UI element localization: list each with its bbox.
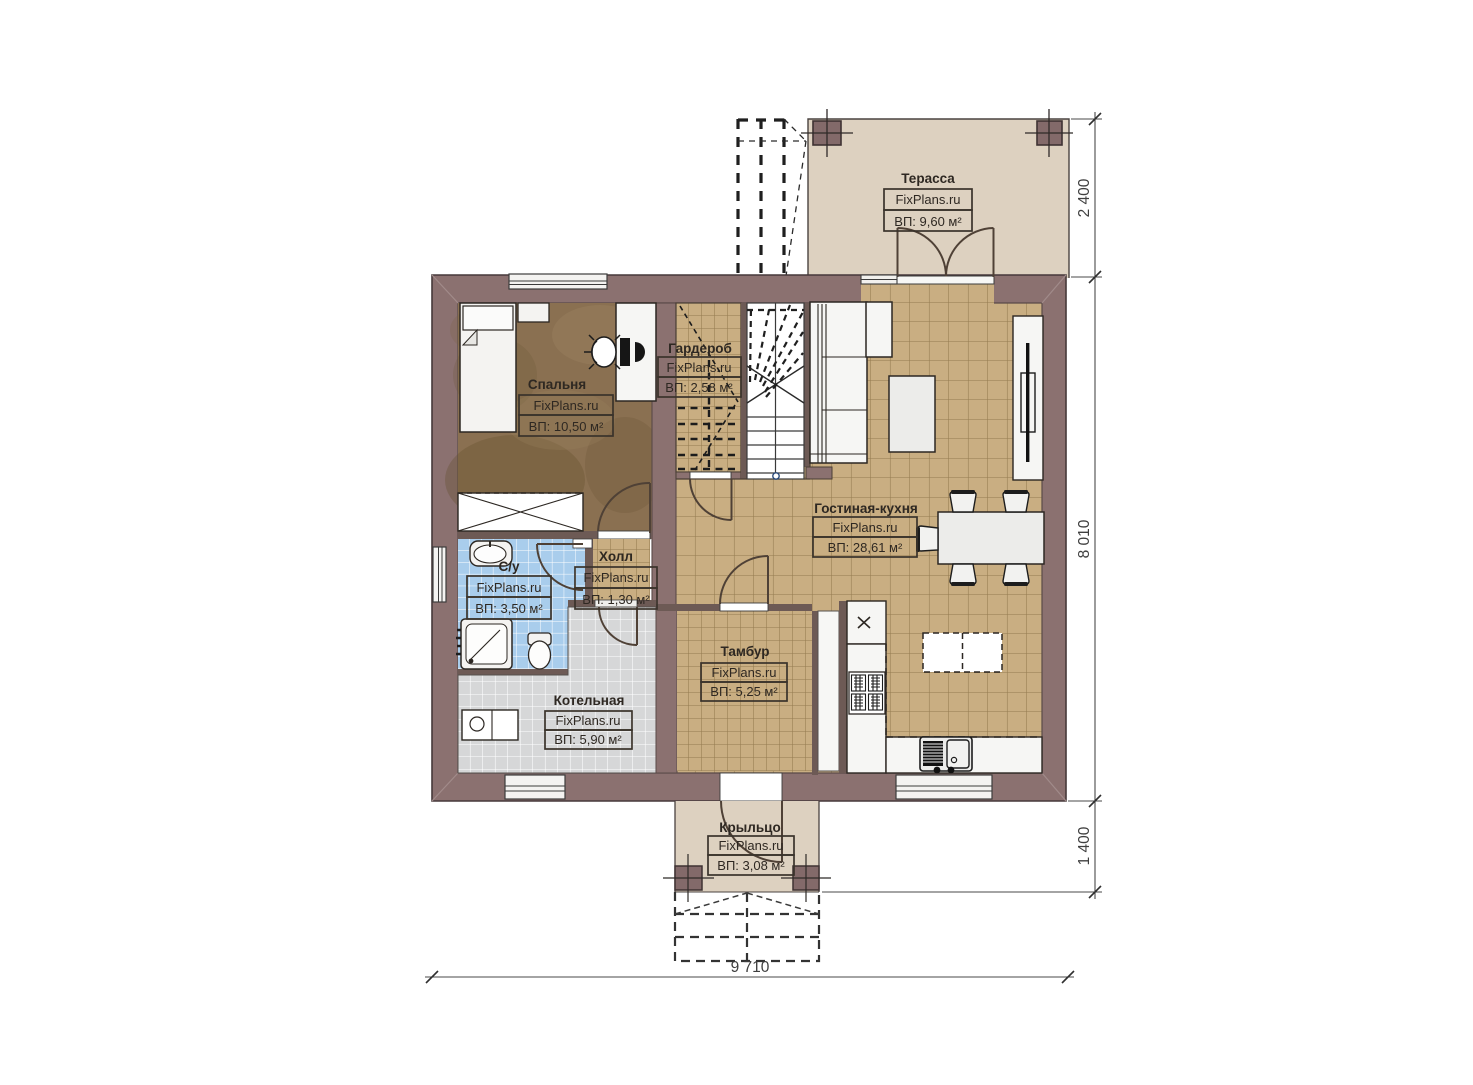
svg-text:2 400: 2 400 bbox=[1076, 178, 1093, 217]
svg-text:ВП: 28,61 м²: ВП: 28,61 м² bbox=[828, 540, 903, 555]
svg-text:ВП: 3,08 м²: ВП: 3,08 м² bbox=[717, 858, 785, 873]
svg-text:1 400: 1 400 bbox=[1076, 826, 1093, 865]
svg-text:FixPlans.ru: FixPlans.ru bbox=[476, 580, 541, 595]
svg-text:ВП: 5,25 м²: ВП: 5,25 м² bbox=[710, 684, 778, 699]
svg-text:8 010: 8 010 bbox=[1076, 519, 1093, 558]
svg-text:ВП: 9,60 м²: ВП: 9,60 м² bbox=[894, 214, 962, 229]
svg-text:FixPlans.ru: FixPlans.ru bbox=[555, 713, 620, 728]
svg-text:ВП: 1,30 м²: ВП: 1,30 м² bbox=[582, 592, 650, 607]
svg-text:С/у: С/у bbox=[498, 559, 520, 574]
svg-text:Котельная: Котельная bbox=[554, 693, 625, 708]
svg-text:FixPlans.ru: FixPlans.ru bbox=[533, 398, 598, 413]
svg-text:9 710: 9 710 bbox=[731, 959, 770, 976]
svg-text:FixPlans.ru: FixPlans.ru bbox=[711, 665, 776, 680]
svg-text:FixPlans.ru: FixPlans.ru bbox=[718, 838, 783, 853]
svg-text:Спальня: Спальня bbox=[528, 377, 586, 392]
svg-text:ВП: 5,90 м²: ВП: 5,90 м² bbox=[554, 732, 622, 747]
svg-text:ВП: 3,50 м²: ВП: 3,50 м² bbox=[475, 601, 543, 616]
svg-text:Холл: Холл bbox=[599, 549, 633, 564]
svg-text:ВП: 2,58 м²: ВП: 2,58 м² bbox=[665, 380, 733, 395]
svg-text:Крыльцо: Крыльцо bbox=[719, 820, 780, 835]
svg-text:Терасса: Терасса bbox=[901, 171, 955, 186]
svg-text:FixPlans.ru: FixPlans.ru bbox=[832, 520, 897, 535]
svg-text:FixPlans.ru: FixPlans.ru bbox=[666, 360, 731, 375]
svg-text:ВП: 10,50 м²: ВП: 10,50 м² bbox=[529, 419, 604, 434]
svg-text:FixPlans.ru: FixPlans.ru bbox=[895, 192, 960, 207]
svg-text:FixPlans.ru: FixPlans.ru bbox=[583, 570, 648, 585]
svg-text:Гостиная-кухня: Гостиная-кухня bbox=[814, 501, 917, 516]
svg-text:Тамбур: Тамбур bbox=[721, 644, 770, 659]
svg-text:Гардероб: Гардероб bbox=[668, 341, 732, 356]
